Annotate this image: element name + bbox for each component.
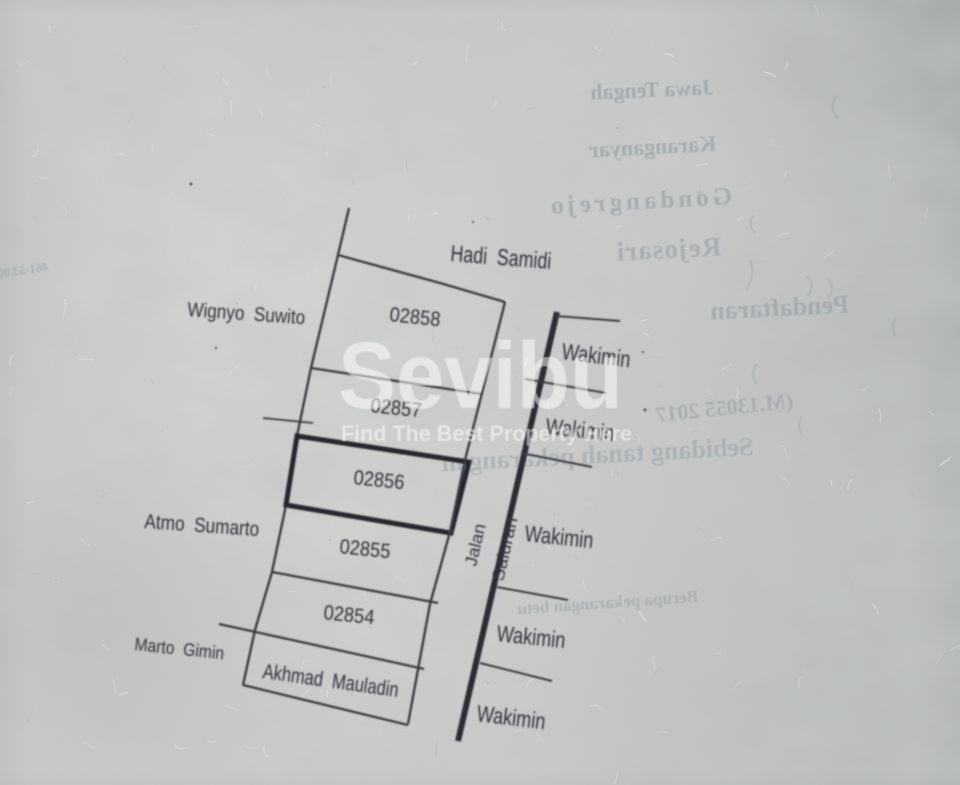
svg-text:Sevibu: Sevibu: [338, 323, 623, 429]
svg-text:Find The Best Property Here: Find The Best Property Here: [341, 421, 632, 446]
svg-text:Rejosari: Rejosari: [615, 231, 722, 266]
svg-text:Jawa Tengah: Jawa Tengah: [590, 74, 714, 104]
